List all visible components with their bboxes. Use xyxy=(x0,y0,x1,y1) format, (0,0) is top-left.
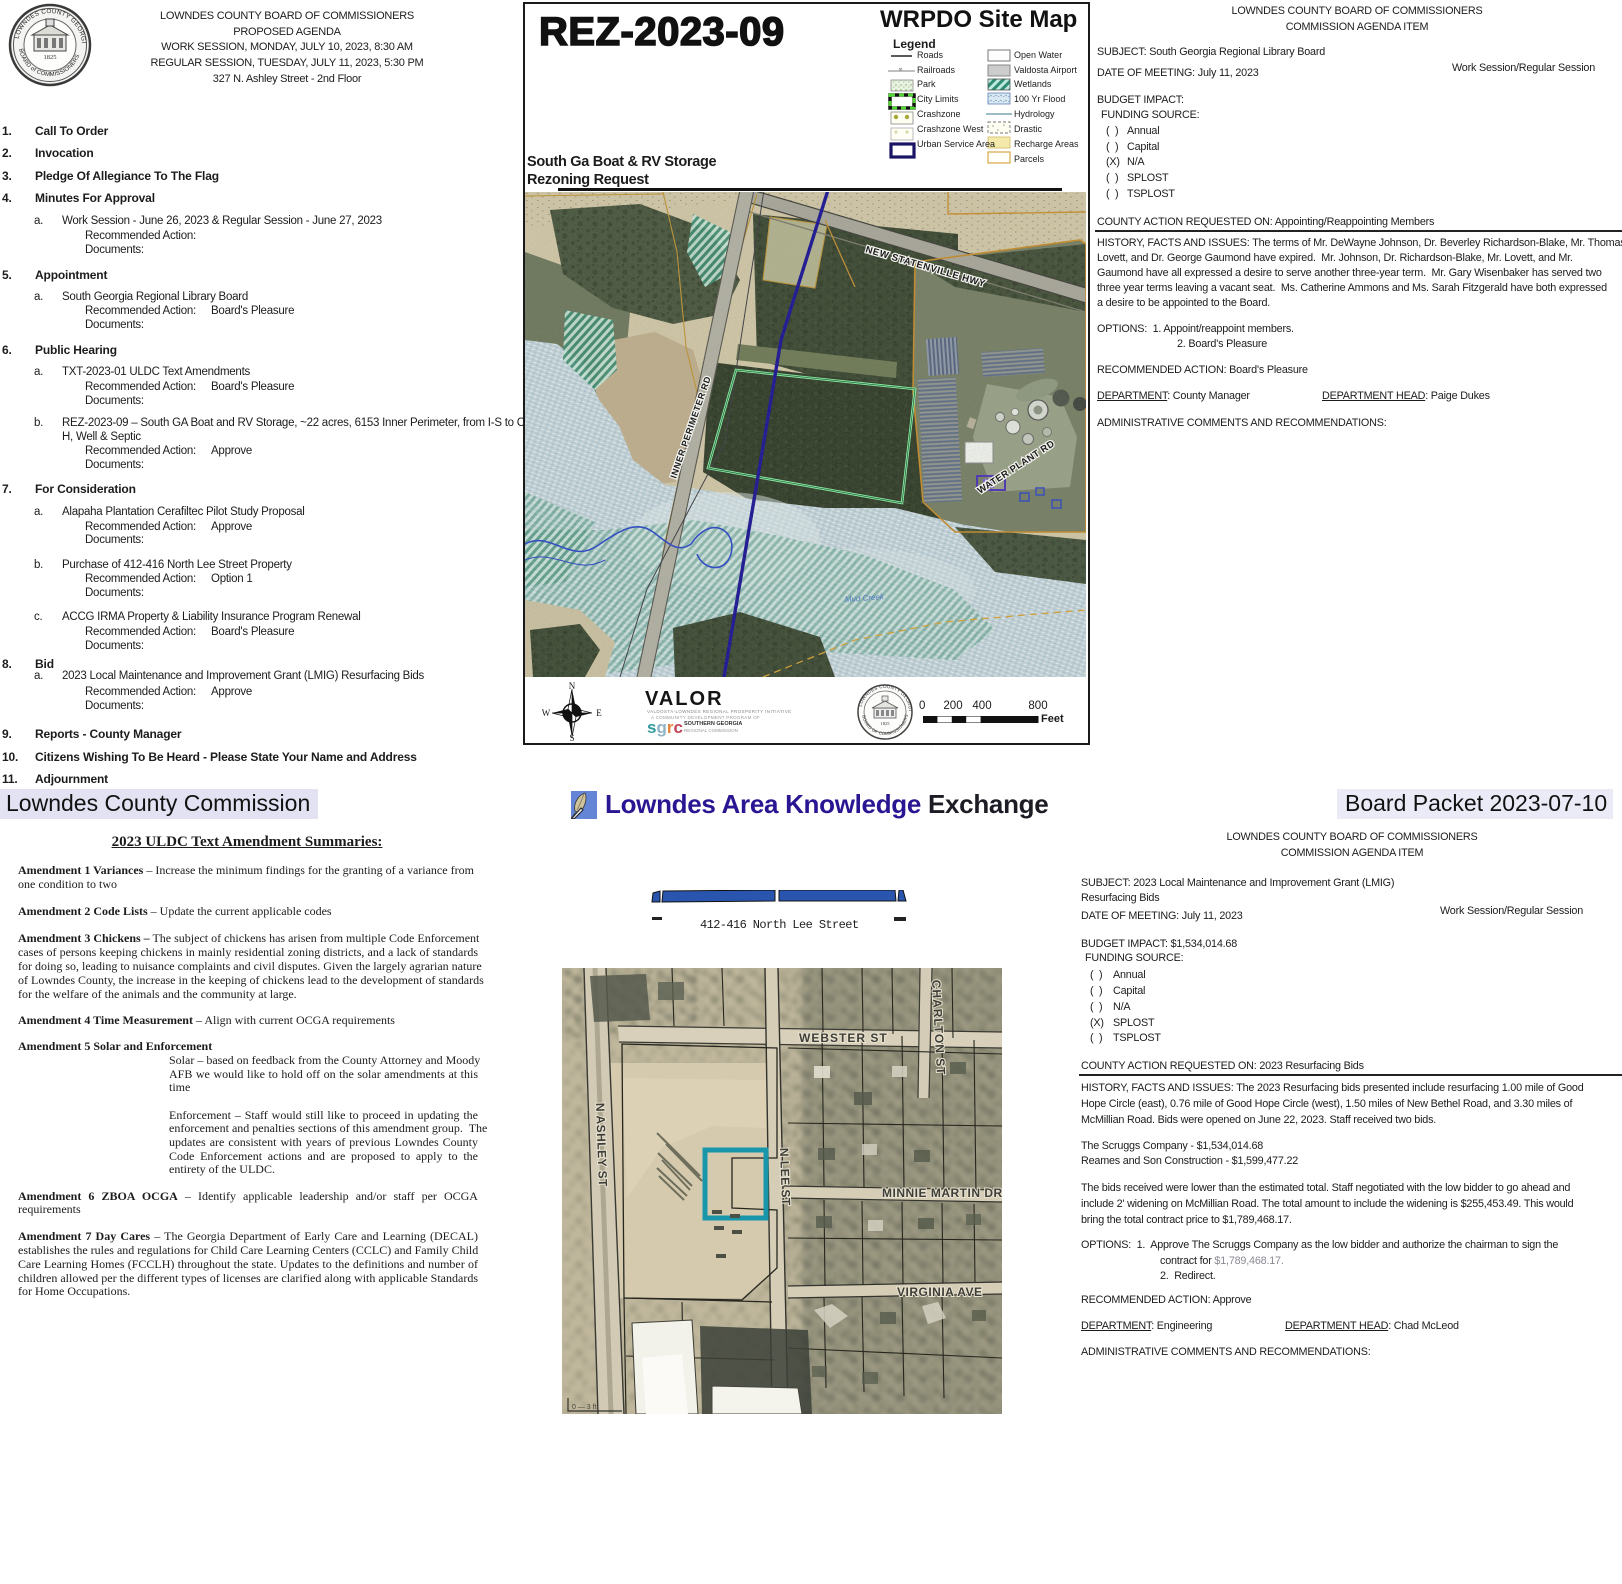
svg-text:VIRGINIA AVE: VIRGINIA AVE xyxy=(897,1285,983,1299)
svg-text:WEBSTER ST: WEBSTER ST xyxy=(799,1031,888,1045)
svg-text:S: S xyxy=(569,733,574,743)
svg-text:N: N xyxy=(569,681,576,691)
svg-text:N ASHLEY ST: N ASHLEY ST xyxy=(593,1103,610,1188)
svg-text:W: W xyxy=(542,708,551,718)
svg-text:N LEE ST: N LEE ST xyxy=(777,1148,793,1207)
svg-text:MINNIE MARTIN DR: MINNIE MARTIN DR xyxy=(882,1186,1002,1200)
svg-text:E: E xyxy=(596,708,602,718)
svg-text:1825: 1825 xyxy=(44,54,57,61)
svg-text:1825: 1825 xyxy=(881,721,891,726)
svg-text:0 — 3 ft: 0 — 3 ft xyxy=(572,1404,597,1411)
